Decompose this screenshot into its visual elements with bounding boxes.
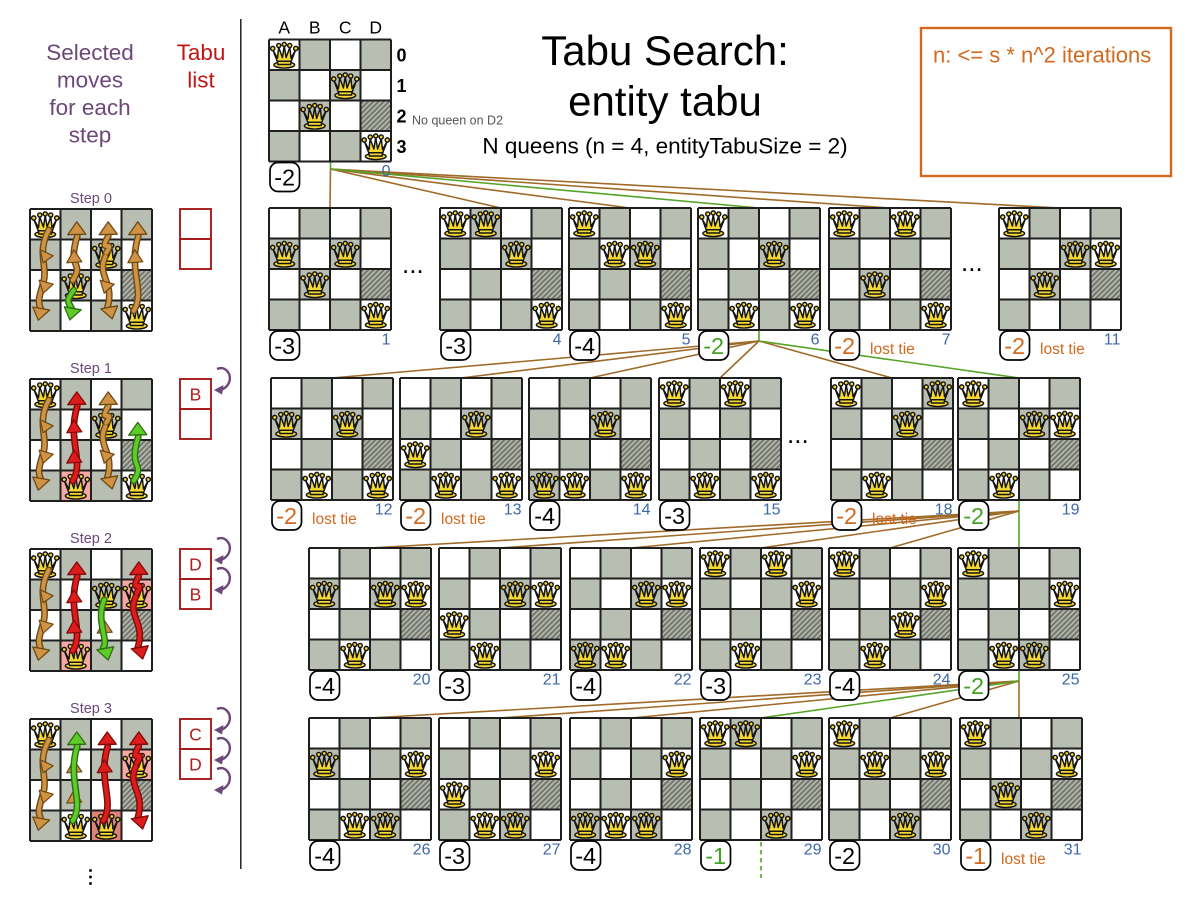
svg-text:-4: -4 [534,503,555,529]
svg-text:-3: -3 [445,333,466,359]
svg-text:-2: -2 [834,843,855,869]
svg-text:-4: -4 [574,333,595,359]
svg-text:lost tie: lost tie [1040,341,1085,358]
svg-text:24: 24 [933,672,951,689]
svg-text:-3: -3 [705,673,726,699]
svg-text:7: 7 [942,332,951,349]
svg-text:Step 3: Step 3 [70,701,112,717]
svg-text:29: 29 [804,842,822,859]
svg-text:1: 1 [382,332,391,349]
svg-text:-2: -2 [703,333,724,359]
svg-text:Step 2: Step 2 [70,531,112,547]
svg-text:-3: -3 [444,673,465,699]
svg-text:-3: -3 [664,503,685,529]
svg-text:21: 21 [543,672,561,689]
svg-text:-4: -4 [314,673,335,699]
svg-text:-2: -2 [276,503,297,529]
svg-text:-2: -2 [963,673,984,699]
svg-text:-2: -2 [405,503,426,529]
svg-text:-4: -4 [575,843,596,869]
svg-text:lost tie: lost tie [872,511,917,528]
svg-text:20: 20 [413,672,431,689]
svg-text:28: 28 [674,842,692,859]
svg-text:19: 19 [1062,502,1080,519]
svg-text:-2: -2 [963,503,984,529]
svg-text:12: 12 [375,502,393,519]
svg-text:...: ... [787,419,809,449]
svg-text:22: 22 [674,672,692,689]
svg-text:6: 6 [811,332,820,349]
svg-text:18: 18 [935,502,953,519]
svg-text:-1: -1 [965,843,986,869]
svg-text:n: <= s * n^2 iterations: n: <= s * n^2 iterations [933,43,1151,68]
svg-text:...: ... [961,247,983,277]
svg-text:-1: -1 [705,843,726,869]
svg-text:lost tie: lost tie [1001,851,1046,868]
svg-text:14: 14 [633,502,651,519]
svg-text:Tabu Search:: Tabu Search: [541,27,789,74]
svg-text:lost tie: lost tie [441,511,486,528]
svg-text:C: C [189,725,202,745]
svg-text:5: 5 [682,332,691,349]
svg-text:D: D [189,755,202,775]
svg-text:...: ... [402,249,424,279]
svg-text:Step 1: Step 1 [70,361,112,377]
svg-text:-4: -4 [314,843,335,869]
svg-text:31: 31 [1064,842,1082,859]
svg-text:lost tie: lost tie [870,341,915,358]
svg-text:entity tabu: entity tabu [568,78,762,125]
svg-text:23: 23 [804,672,822,689]
svg-text:D: D [189,555,202,575]
svg-text:-2: -2 [834,333,855,359]
svg-text:27: 27 [543,842,561,859]
svg-text:No queen on D2: No queen on D2 [412,114,503,128]
svg-text:26: 26 [413,842,431,859]
svg-text:30: 30 [933,842,951,859]
svg-text:15: 15 [763,502,781,519]
svg-text:13: 13 [504,502,522,519]
svg-text:-3: -3 [274,333,295,359]
svg-text:-2: -2 [836,503,857,529]
svg-text:-2: -2 [274,165,295,191]
svg-text:-2: -2 [1004,333,1025,359]
svg-text:-4: -4 [575,673,596,699]
svg-text:4: 4 [553,332,562,349]
svg-text:lost tie: lost tie [312,511,357,528]
svg-text:Step 0: Step 0 [70,191,112,207]
svg-text:0: 0 [382,163,391,180]
svg-text:B: B [190,385,202,405]
svg-text:25: 25 [1062,672,1080,689]
svg-text:N queens (n = 4, entityTabuSiz: N queens (n = 4, entityTabuSize = 2) [482,134,847,159]
svg-text:11: 11 [1104,332,1121,349]
svg-text:-4: -4 [834,673,855,699]
svg-text:B: B [190,585,202,605]
svg-text:-3: -3 [444,843,465,869]
